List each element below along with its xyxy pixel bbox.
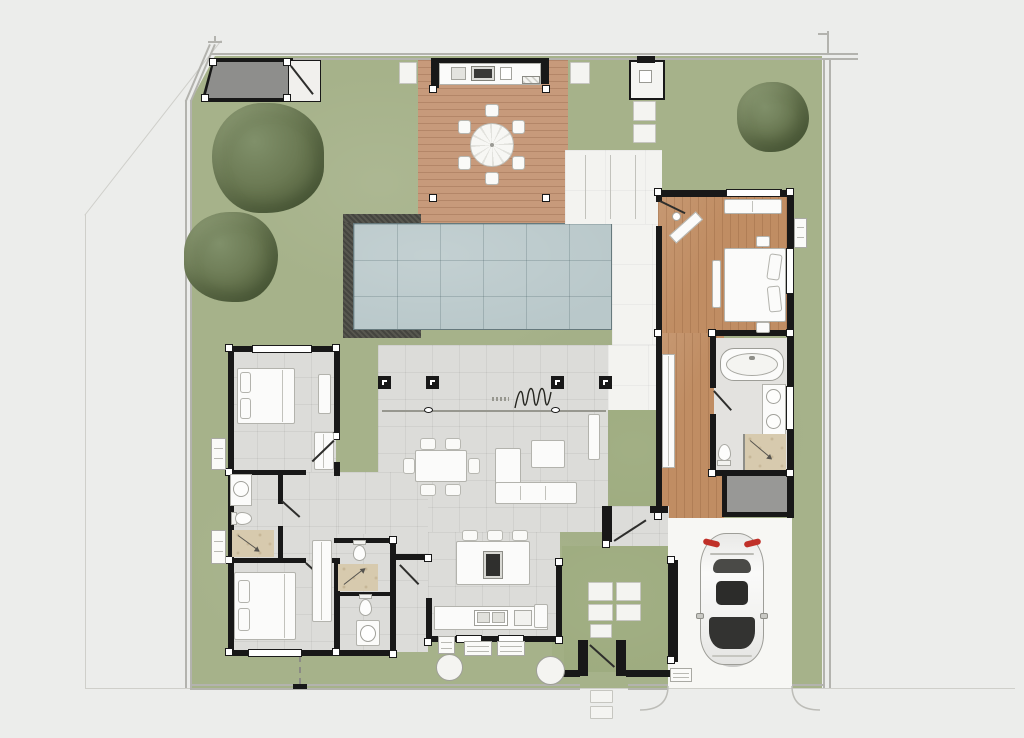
wall [228,558,306,563]
car-rear-window [713,559,751,573]
marker [602,540,610,548]
stepping-stone [616,604,641,621]
marker [654,188,662,196]
outdoor-fridge [500,67,512,80]
marker [708,329,716,337]
outdoor-shower-accent-wall [637,56,655,63]
tub-faucet [749,356,755,360]
marker [283,58,291,66]
stepping-stone [590,690,613,703]
garden-path-dashed [299,656,301,684]
planter-strip [610,410,658,506]
window-bench [724,199,782,214]
marker [555,558,563,566]
tv-console [588,414,600,460]
storage-room-floor [726,476,788,514]
pergola-line [610,155,611,219]
bar-stool [462,530,478,541]
dining-chair [403,458,415,474]
tall-cabinet [534,604,548,628]
car-mirror [696,613,704,619]
wall [722,512,794,517]
bar-stool [512,530,528,541]
shower [338,564,378,591]
stepping-stone [616,582,641,601]
marker [225,344,233,352]
survey-tick-right-v [827,31,829,55]
pool-coping-bottom [343,329,421,338]
wall [278,526,283,562]
boundary-right-1 [823,58,825,688]
tree [184,212,278,302]
structural-column [378,376,391,389]
dining-chair [420,438,436,450]
dining-chair [468,458,480,474]
wardrobe-line [668,356,669,466]
window [248,649,302,657]
deck-column [542,85,550,93]
driveway-curbs [600,684,1024,738]
survey-tick-right [818,33,828,35]
boundary-top-1 [210,53,858,55]
wardrobe-line [321,542,322,620]
pillow [240,398,251,419]
ac-unit [497,641,525,656]
courtyard-wall [626,670,670,677]
boundary-left-1 [185,100,187,688]
outdoor-kitchen-hatch [522,76,540,84]
outdoor-grill [471,66,495,81]
car-mirror [760,613,768,619]
boundary-left-2 [190,100,192,688]
plot-line-left [85,214,86,688]
dining-table [415,450,467,482]
tree [212,103,324,213]
pillow [767,285,783,312]
marker [225,648,233,656]
pergola-line [585,155,586,219]
wall [602,506,612,542]
duvet-line [284,574,285,638]
wall [340,650,396,656]
window [786,248,794,294]
marker [389,536,397,544]
cooktop [483,551,503,579]
marker [283,94,291,102]
window [726,189,782,197]
wall [334,462,340,476]
structural-column [426,376,439,389]
tree [737,82,809,152]
sink-basin [477,612,490,623]
writing-desk [318,374,331,414]
stepping-stone [590,706,613,719]
deck-column [429,194,437,202]
wall [334,346,340,436]
vanity-basin [766,389,781,404]
bedside-table [756,236,770,247]
pool-coping-top [343,214,421,223]
window [252,345,312,353]
marker [555,636,563,644]
outdoor-kitchen-pier-right [541,58,549,84]
sliding-door-track [382,410,606,412]
sofa-cushion-line [520,486,521,500]
dining-chair [445,484,461,496]
stepping-stone [590,624,612,638]
utility-box [438,636,455,654]
dining-chair [420,484,436,496]
junction-floor [338,472,380,534]
wall [710,330,794,336]
parked-car [700,533,766,669]
car-sunroof [716,581,748,605]
ac-unit [794,218,807,248]
marker [332,344,340,352]
outdoor-chair [512,120,525,134]
shower-glass [743,434,745,470]
stepping-stone [633,124,656,143]
door-roller [424,407,433,413]
fence-south-2 [190,688,580,690]
bench-line [752,201,753,212]
outdoor-chair [512,156,525,170]
outdoor-kitchen-sink [451,67,466,80]
marker [667,656,675,664]
deck-column [542,194,550,202]
gate-motor-box [670,668,692,682]
oven [514,610,532,626]
ac-unit [211,530,226,564]
covered-terrace [565,150,662,224]
outdoor-kitchen-pier-left [431,58,439,88]
marker [332,648,340,656]
window [786,386,794,430]
bedside-table [756,322,770,333]
deck-column [429,85,437,93]
pool-coping-left [343,214,353,338]
wall [787,190,794,248]
wall [722,476,727,516]
bed-end-bench [712,260,721,308]
marker [786,188,794,196]
outdoor-chair [485,104,499,117]
fence-south-1 [190,684,580,686]
outdoor-chair [458,120,471,134]
wall [710,330,716,388]
car-trunk-line [710,553,754,555]
marker [389,650,397,658]
stepping-stone [399,62,417,84]
vanity-basin [766,414,781,429]
sink-basin [492,612,505,623]
marker [225,556,233,564]
marker [667,556,675,564]
duvet-line [282,370,283,422]
sofa-cushion-line [545,486,546,500]
stepping-stone [570,62,590,84]
boundary-right-2 [829,58,831,688]
marker [201,94,209,102]
washbasin [233,481,249,497]
wall [787,294,794,386]
marker [654,512,662,520]
survey-tick-left-v [214,36,216,42]
bar-stool [487,530,503,541]
marker [424,554,432,562]
pergola-line [635,155,636,219]
marker [786,469,794,477]
gate-pier [616,640,626,676]
wall [278,470,283,504]
sofa-l-shaped-base [495,482,577,504]
stepping-stone [588,582,613,601]
marker [708,469,716,477]
pillow [238,580,250,603]
desk-stool [672,212,681,221]
marker [424,638,432,646]
wall [710,414,716,474]
marker [209,58,217,66]
water-tank [536,656,565,685]
covered-terrace-east [612,224,662,345]
canopy-patio [205,62,289,98]
parasol-center [490,143,494,147]
washbasin-oval [360,625,376,642]
toilet [359,599,372,616]
toilet [353,545,366,561]
car-windshield [709,617,755,649]
shower [232,530,274,557]
stepping-stone [633,101,656,121]
pillow [238,608,250,631]
floor-plan-canvas [0,0,1024,738]
stepping-stone [588,604,613,621]
structural-column [599,376,612,389]
ac-unit [211,438,226,470]
hall-wardrobe [312,540,332,622]
ac-unit [464,641,492,656]
wall [656,190,726,197]
wall [556,560,562,642]
pillow [240,372,251,393]
car-hood-line [712,655,752,657]
outdoor-shower-drain [639,70,652,83]
covered-terrace-south [608,345,658,410]
dining-chair [445,438,461,450]
carport-courtyard-wall [668,560,678,662]
annotation-scribble [492,397,509,401]
toilet [718,444,731,461]
gate-marker-path [293,684,307,689]
water-tank [436,654,463,681]
swimming-pool [353,223,612,330]
coffee-table [531,440,565,468]
marker [786,329,794,337]
outdoor-chair [485,172,499,185]
folding-door-symbol [512,385,558,411]
marker [654,329,662,337]
outdoor-chair [458,156,471,170]
